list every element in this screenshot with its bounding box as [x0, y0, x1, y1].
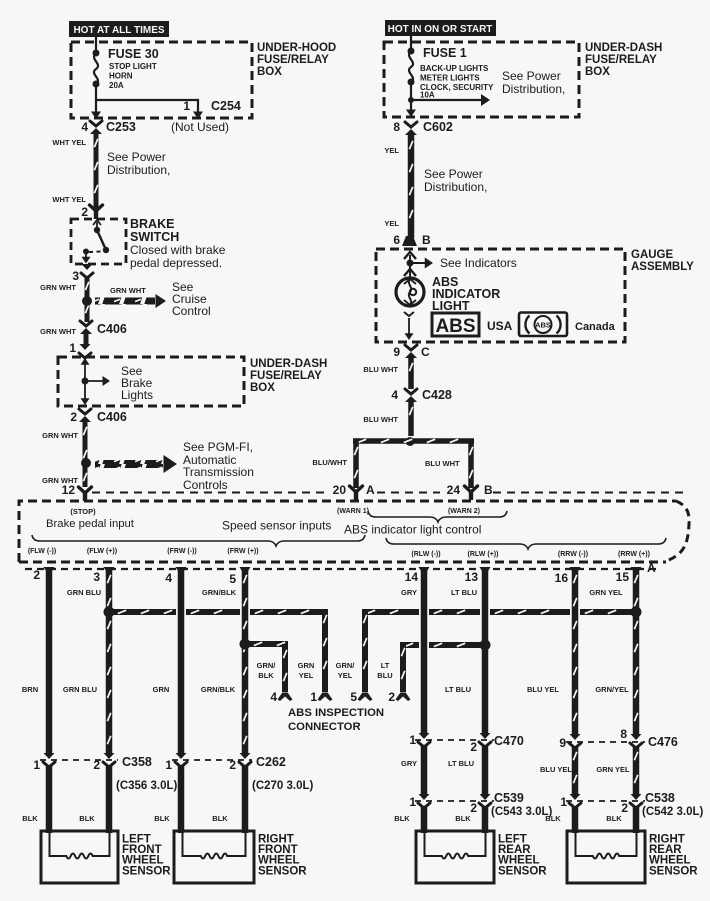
svg-text:(Not Used): (Not Used) — [171, 120, 229, 134]
svg-text:GAUGE: GAUGE — [631, 249, 674, 261]
svg-text:2: 2 — [470, 801, 477, 815]
svg-text:LT: LT — [381, 661, 390, 670]
svg-text:BLU WHT: BLU WHT — [363, 365, 398, 374]
svg-text:3: 3 — [72, 269, 79, 283]
svg-text:2: 2 — [388, 690, 395, 704]
svg-text:A: A — [647, 561, 656, 575]
svg-text:WHT YEL: WHT YEL — [52, 138, 86, 147]
svg-text:BLU WHT: BLU WHT — [363, 415, 398, 424]
svg-text:ABS: ABS — [435, 316, 475, 337]
svg-text:(WARN 2): (WARN 2) — [448, 508, 480, 515]
svg-text:GRN WHT: GRN WHT — [40, 327, 76, 336]
svg-text:ABS indicator light control: ABS indicator light control — [344, 523, 481, 537]
svg-text:2: 2 — [470, 740, 477, 754]
svg-text:GRN/BLK: GRN/BLK — [201, 685, 236, 694]
svg-text:(C356 3.0L): (C356 3.0L) — [116, 780, 178, 792]
svg-text:C253: C253 — [106, 120, 136, 134]
svg-text:See Power: See Power — [424, 167, 483, 181]
svg-text:ABS: ABS — [535, 321, 551, 330]
svg-text:8: 8 — [620, 727, 627, 741]
svg-text:C470: C470 — [494, 734, 524, 748]
svg-text:C406: C406 — [97, 410, 127, 424]
svg-text:BOX: BOX — [257, 66, 282, 78]
svg-text:14: 14 — [405, 570, 419, 584]
svg-text:BACK-UP LIGHTS: BACK-UP LIGHTS — [420, 64, 489, 73]
svg-text:METER LIGHTS: METER LIGHTS — [420, 74, 480, 83]
svg-text:SENSOR: SENSOR — [122, 865, 171, 877]
svg-text:See Power: See Power — [502, 69, 561, 83]
svg-text:SENSOR: SENSOR — [498, 865, 547, 877]
svg-text:C539: C539 — [494, 791, 524, 805]
svg-text:YEL: YEL — [299, 671, 314, 680]
svg-text:BLK: BLK — [455, 814, 471, 823]
svg-text:2: 2 — [70, 410, 77, 424]
svg-text:WHT YEL: WHT YEL — [52, 195, 86, 204]
svg-text:BLK: BLK — [212, 814, 228, 823]
svg-text:BLU YEL: BLU YEL — [540, 765, 572, 774]
svg-text:2: 2 — [621, 801, 628, 815]
svg-text:BLU WHT: BLU WHT — [425, 459, 460, 468]
svg-text:HOT IN ON OR START: HOT IN ON OR START — [388, 24, 493, 35]
svg-text:GRN/: GRN/ — [336, 661, 356, 670]
svg-text:20A: 20A — [109, 81, 124, 90]
svg-text:BLK: BLK — [79, 814, 95, 823]
svg-text:USA: USA — [487, 319, 513, 333]
svg-text:C358: C358 — [122, 755, 152, 769]
svg-text:(FRW (-)): (FRW (-)) — [167, 548, 196, 555]
svg-text:(RLW (-)): (RLW (-)) — [411, 551, 440, 558]
svg-text:12: 12 — [62, 483, 76, 497]
svg-text:GRN BLU: GRN BLU — [67, 588, 101, 597]
svg-text:Control: Control — [172, 304, 211, 318]
svg-text:Lights: Lights — [121, 388, 153, 402]
svg-text:2: 2 — [81, 205, 88, 219]
svg-text:4: 4 — [391, 388, 398, 402]
svg-text:YEL: YEL — [384, 146, 399, 155]
svg-text:BLK: BLK — [258, 671, 274, 680]
svg-text:2: 2 — [33, 568, 40, 582]
svg-text:UNDER-DASH: UNDER-DASH — [585, 42, 662, 54]
svg-text:ASSEMBLY: ASSEMBLY — [631, 261, 694, 273]
svg-text:C538: C538 — [645, 791, 675, 805]
svg-text:1: 1 — [33, 758, 40, 772]
svg-text:GRN YEL: GRN YEL — [589, 588, 623, 597]
svg-text:CONNECTOR: CONNECTOR — [288, 721, 361, 733]
svg-text:STOP LIGHT: STOP LIGHT — [109, 62, 157, 71]
svg-text:13: 13 — [465, 570, 479, 584]
svg-text:15: 15 — [616, 570, 630, 584]
svg-text:BRN: BRN — [22, 685, 38, 694]
svg-text:A: A — [366, 483, 375, 497]
svg-text:C428: C428 — [422, 388, 452, 402]
svg-text:Transmission: Transmission — [183, 465, 254, 479]
svg-text:LT BLU: LT BLU — [448, 759, 474, 768]
svg-text:GRN YEL: GRN YEL — [596, 765, 630, 774]
svg-text:Distribution,: Distribution, — [424, 180, 487, 194]
svg-text:5: 5 — [229, 572, 236, 586]
svg-text:C254: C254 — [211, 99, 241, 113]
svg-text:(WARN 1): (WARN 1) — [337, 508, 369, 515]
svg-text:FUSE 30: FUSE 30 — [108, 47, 159, 61]
svg-text:BLU/WHT: BLU/WHT — [312, 458, 347, 467]
svg-text:1: 1 — [560, 795, 567, 809]
svg-text:1: 1 — [409, 733, 416, 747]
svg-text:BLK: BLK — [22, 814, 38, 823]
svg-text:(RRW (-)): (RRW (-)) — [558, 551, 588, 558]
svg-text:BLU: BLU — [377, 671, 392, 680]
svg-text:1: 1 — [310, 690, 317, 704]
svg-text:20: 20 — [333, 483, 347, 497]
svg-text:GRN WHT: GRN WHT — [42, 431, 78, 440]
svg-text:BLK: BLK — [545, 814, 561, 823]
svg-text:See Indicators: See Indicators — [440, 256, 517, 270]
svg-text:GRN BLU: GRN BLU — [63, 685, 97, 694]
svg-text:Closed with brake: Closed with brake — [130, 243, 226, 257]
svg-text:5: 5 — [350, 690, 357, 704]
svg-text:9: 9 — [393, 345, 400, 359]
svg-text:24: 24 — [447, 483, 461, 497]
svg-text:4: 4 — [270, 690, 277, 704]
svg-text:8: 8 — [393, 120, 400, 134]
svg-text:C602: C602 — [423, 120, 453, 134]
svg-text:1: 1 — [165, 758, 172, 772]
svg-text:(FRW (+)): (FRW (+)) — [227, 548, 258, 555]
svg-text:C476: C476 — [648, 735, 678, 749]
svg-text:B: B — [484, 483, 493, 497]
svg-text:10A: 10A — [420, 91, 435, 100]
svg-text:(STOP): (STOP) — [70, 507, 96, 516]
svg-text:C262: C262 — [256, 755, 286, 769]
svg-text:(RRW (+)): (RRW (+)) — [618, 551, 650, 558]
svg-text:(FLW (-)): (FLW (-)) — [28, 548, 56, 555]
svg-text:HORN: HORN — [109, 72, 133, 81]
svg-text:9: 9 — [559, 736, 566, 750]
svg-text:See PGM-FI,: See PGM-FI, — [183, 440, 253, 454]
svg-text:BLK: BLK — [154, 814, 170, 823]
svg-text:FUSE/RELAY: FUSE/RELAY — [257, 54, 329, 66]
svg-text:1: 1 — [409, 795, 416, 809]
svg-text:2: 2 — [229, 758, 236, 772]
svg-text:GRN/BLK: GRN/BLK — [202, 588, 237, 597]
svg-text:GRN WHT: GRN WHT — [40, 283, 76, 292]
svg-text:GRY: GRY — [401, 588, 417, 597]
svg-text:GRN: GRN — [153, 685, 170, 694]
svg-text:(RLW (+)): (RLW (+)) — [468, 551, 499, 558]
svg-text:Speed sensor inputs: Speed sensor inputs — [222, 519, 331, 533]
svg-text:BOX: BOX — [585, 66, 610, 78]
svg-text:GRY: GRY — [401, 759, 417, 768]
svg-text:BLU YEL: BLU YEL — [527, 685, 559, 694]
svg-text:LT BLU: LT BLU — [451, 588, 477, 597]
svg-text:FUSE 1: FUSE 1 — [423, 46, 467, 60]
svg-text:SWITCH: SWITCH — [130, 230, 179, 244]
svg-text:SENSOR: SENSOR — [649, 865, 698, 877]
svg-text:1: 1 — [69, 341, 76, 355]
svg-text:pedal depressed.: pedal depressed. — [130, 256, 222, 270]
svg-text:BLK: BLK — [394, 814, 410, 823]
svg-text:LIGHT: LIGHT — [432, 299, 470, 313]
svg-text:GRN/YEL: GRN/YEL — [595, 685, 629, 694]
svg-text:1: 1 — [183, 99, 190, 113]
svg-text:C406: C406 — [97, 322, 127, 336]
svg-text:4: 4 — [165, 571, 172, 585]
svg-text:Controls: Controls — [183, 478, 228, 492]
svg-text:3: 3 — [93, 570, 100, 584]
svg-text:UNDER-DASH: UNDER-DASH — [250, 358, 327, 370]
svg-text:ABS INSPECTION: ABS INSPECTION — [288, 707, 384, 719]
svg-text:BOX: BOX — [250, 382, 275, 394]
svg-text:6: 6 — [393, 233, 400, 247]
svg-text:See Power: See Power — [107, 150, 166, 164]
svg-text:4: 4 — [81, 120, 88, 134]
svg-text:HOT AT ALL TIMES: HOT AT ALL TIMES — [73, 25, 164, 36]
svg-text:LT BLU: LT BLU — [445, 685, 471, 694]
svg-text:Canada: Canada — [575, 321, 616, 333]
svg-text:FUSE/RELAY: FUSE/RELAY — [250, 370, 322, 382]
svg-text:GRN/: GRN/ — [257, 661, 277, 670]
svg-text:2: 2 — [93, 758, 100, 772]
svg-text:BLK: BLK — [606, 814, 622, 823]
svg-text:16: 16 — [555, 571, 569, 585]
svg-text:YEL: YEL — [384, 219, 399, 228]
svg-text:(C270 3.0L): (C270 3.0L) — [252, 780, 314, 792]
svg-text:GRN WHT: GRN WHT — [110, 286, 146, 295]
svg-text:SENSOR: SENSOR — [258, 865, 307, 877]
svg-text:Brake pedal input: Brake pedal input — [46, 518, 135, 530]
svg-text:(C543 3.0L): (C543 3.0L) — [491, 806, 553, 818]
svg-text:FUSE/RELAY: FUSE/RELAY — [585, 54, 657, 66]
svg-text:Distribution,: Distribution, — [107, 163, 170, 177]
svg-text:UNDER-HOOD: UNDER-HOOD — [257, 42, 336, 54]
svg-text:C: C — [421, 345, 430, 359]
svg-text:Distribution,: Distribution, — [502, 82, 565, 96]
svg-text:YEL: YEL — [338, 671, 353, 680]
svg-text:BRAKE: BRAKE — [130, 217, 174, 231]
svg-text:(C542 3.0L): (C542 3.0L) — [642, 806, 704, 818]
svg-text:B: B — [422, 233, 431, 247]
svg-text:GRN: GRN — [298, 661, 315, 670]
svg-text:(FLW (+)): (FLW (+)) — [87, 548, 117, 555]
